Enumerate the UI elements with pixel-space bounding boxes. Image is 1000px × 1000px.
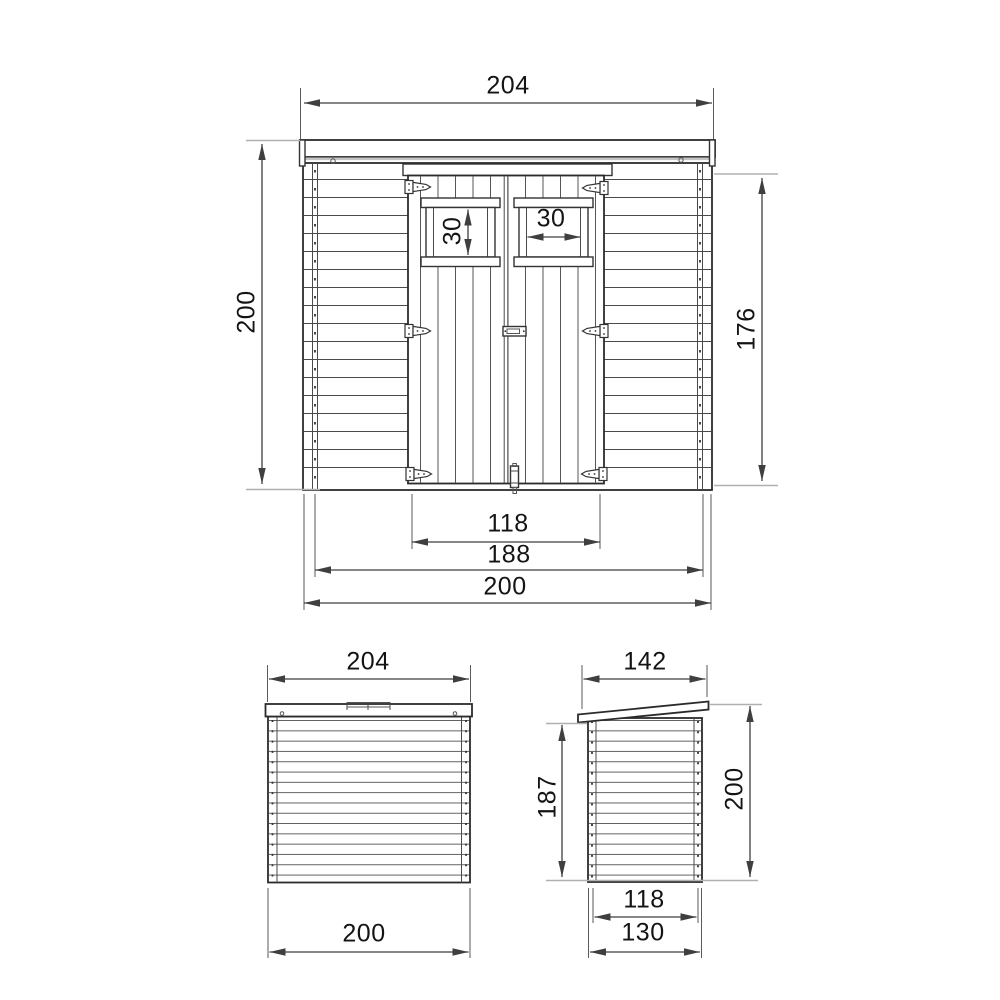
technical-drawing-page: 204 200 176 30 30 118 188 200 204 200 14… <box>0 0 1000 1000</box>
front-roof-fascia <box>300 140 715 157</box>
side-roof-depth-label: 142 <box>623 650 666 675</box>
front-door-width-label: 118 <box>487 512 528 537</box>
window-height-label: 30 <box>441 217 466 246</box>
door-latch-icon <box>503 327 526 337</box>
front-inner-width-label: 188 <box>487 543 530 568</box>
side-inner-depth-label: 118 <box>623 888 664 913</box>
technical-drawing-canvas <box>0 0 1000 1000</box>
front-base-width-label: 200 <box>483 575 526 600</box>
side-base-depth-label: 130 <box>621 921 664 946</box>
roof-end-cap-left <box>300 140 306 166</box>
front-roof-width-label: 204 <box>486 74 529 99</box>
door-lintel <box>403 164 612 176</box>
front-wall-height-label: 176 <box>735 307 760 350</box>
back-roof-fascia <box>266 704 473 717</box>
side-wall-height-label: 187 <box>536 775 561 818</box>
back-roof-width-label: 204 <box>346 650 389 675</box>
back-base-width-label: 200 <box>342 922 385 947</box>
side-overall-height-label: 200 <box>723 767 748 810</box>
roof-end-cap-right <box>710 140 716 166</box>
back-view-drawing <box>266 665 473 958</box>
window-width-label: 30 <box>537 207 566 232</box>
front-overall-height-label: 200 <box>235 290 260 333</box>
side-view-drawing <box>546 665 762 958</box>
